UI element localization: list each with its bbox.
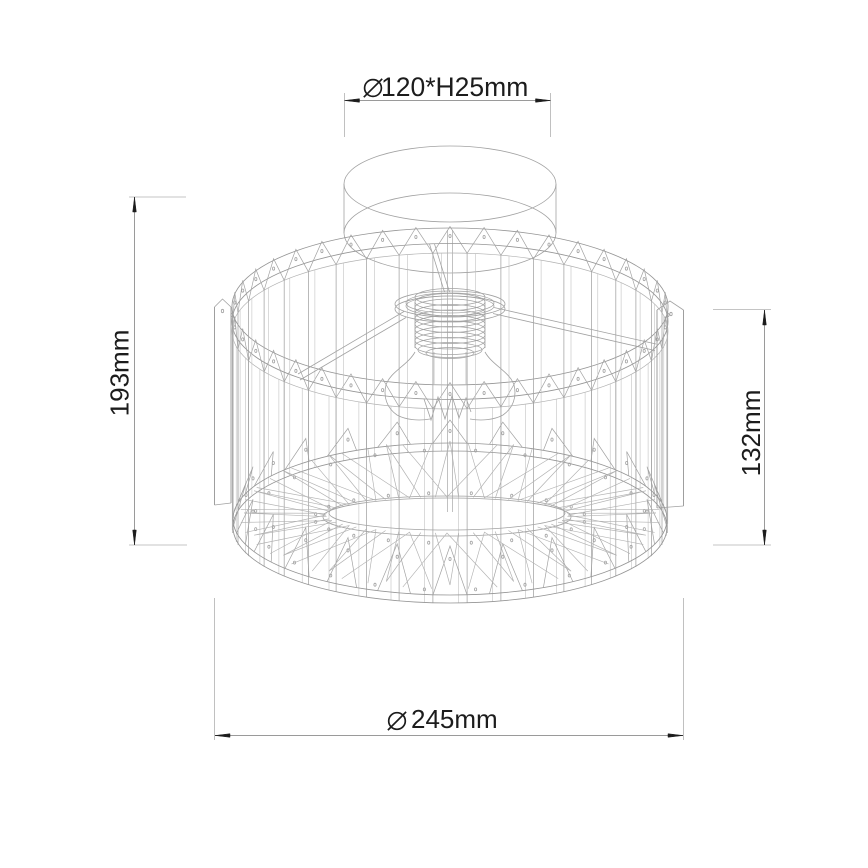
- svg-text:193mm: 193mm: [105, 330, 135, 417]
- svg-text:120*H25mm: 120*H25mm: [381, 72, 528, 102]
- svg-text:245mm: 245mm: [411, 704, 498, 734]
- svg-text:132mm: 132mm: [736, 390, 766, 477]
